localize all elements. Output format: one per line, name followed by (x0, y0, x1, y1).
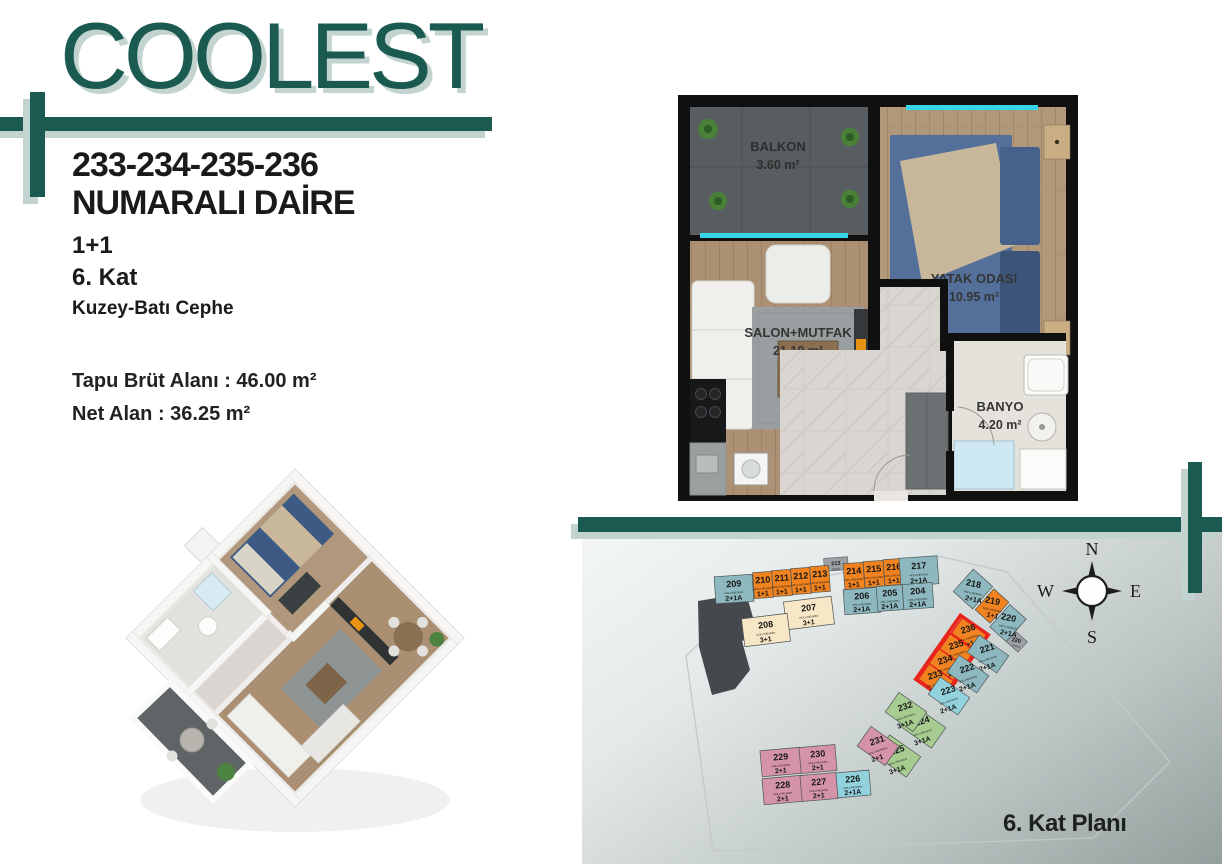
unit-number: 207 (801, 602, 817, 614)
room-label: BALKON (750, 139, 806, 154)
site-unit-229: 229NOLU MESKEN2+1 (760, 747, 802, 776)
unit-type: 2+1A (881, 603, 898, 611)
apartment-facade: Kuzey-Batı Cephe (72, 298, 234, 320)
unit-number: 229 (773, 751, 789, 762)
unit-number: 208 (758, 619, 774, 631)
stub-number: 213 (831, 561, 841, 568)
site-plan-caption: 6. Kat Planı (1003, 810, 1153, 838)
unit-type: 1+1 (888, 578, 900, 586)
apartment-numbers: 233-234-235-236 (72, 146, 318, 185)
apartment-layout: 1+1 (72, 232, 113, 260)
unit-number: 215 (866, 563, 882, 574)
compass-s: S (1087, 627, 1097, 647)
unit-number: 228 (775, 779, 791, 790)
brochure-page: COOLEST 233-234-235-236 NUMARALI DAİRE 1… (0, 0, 1222, 864)
apartment-floor: 6. Kat (72, 264, 137, 292)
window-line (700, 233, 848, 238)
gross-area: Tapu Brüt Alanı : 46.00 m² (72, 370, 316, 393)
unit-type: 2+1A (853, 606, 870, 614)
site-unit-210: 210NOLU MESKEN1+1 (753, 571, 774, 598)
unit-number: 210 (755, 574, 771, 585)
armchair (766, 245, 830, 303)
compass-w: W (1037, 581, 1054, 601)
unit-number: 217 (911, 560, 927, 571)
unit-number: 226 (845, 773, 861, 784)
entry-door (874, 491, 908, 501)
unit-number: 227 (811, 776, 827, 787)
unit-type: 3+1 (802, 619, 815, 627)
unit-type: 2+1 (813, 792, 826, 800)
room-area: 3.60 m² (756, 158, 799, 172)
shower (954, 441, 1014, 489)
unit-type: 1+1 (776, 589, 788, 597)
room-bathroom: BANYO 4.20 m² (952, 335, 1068, 491)
unit-type: 1+1 (795, 587, 807, 595)
unit-type: 3+1 (759, 636, 772, 644)
unit-number: 211 (774, 572, 789, 583)
isometric-render (100, 448, 490, 858)
room-area: 4.20 m² (978, 418, 1021, 432)
site-unit-204: 204NOLU MESKEN2+1A (902, 582, 934, 609)
site-unit-207: 207NOLU MESKEN3+1 (783, 596, 834, 630)
site-unit-230: 230NOLU MESKEN2+1 (799, 744, 837, 773)
stub-sublabel: TERAS (832, 568, 841, 572)
site-unit-215: 215NOLU MESKEN1+1 (863, 560, 885, 587)
room-balcony: BALKON 3.60 m² (690, 107, 868, 238)
site-unit-208: 208NOLU MESKEN3+1 (741, 613, 790, 646)
unit-number: 205 (882, 587, 898, 598)
unit-type: 2+1 (812, 764, 825, 772)
unit-number: 230 (810, 748, 826, 759)
site-plan-units: 213TERAS220TERAS209NOLU MESKEN2+1A210NOL… (714, 556, 1027, 805)
site-unit-226: 226NOLU MESKEN2+1A (835, 770, 871, 798)
site-unit-217: 217NOLU MESKEN2+1A (899, 556, 939, 587)
unit-number: 214 (846, 565, 862, 576)
unit-type: 2+1 (777, 795, 790, 803)
site-unit-211: 211NOLU MESKEN1+1 (772, 569, 793, 596)
compass-e: E (1130, 581, 1141, 601)
bathtub (1024, 355, 1068, 395)
divider-mid-cross (1188, 462, 1202, 593)
room-label: BANYO (977, 399, 1024, 414)
unit-type: 2+1A (939, 704, 957, 716)
unit-type: 1+1 (848, 582, 860, 590)
net-area: Net Alan : 36.25 m² (72, 403, 250, 426)
unit-number: 204 (910, 585, 926, 596)
apartment-title: NUMARALI DAİRE (72, 184, 355, 223)
divider-mid (578, 517, 1222, 532)
site-unit-213: 213NOLU MESKEN1+1 (810, 565, 831, 592)
unit-number: 206 (854, 590, 870, 601)
unit-type: 1+1 (814, 585, 826, 593)
site-unit-205: 205NOLU MESKEN2+1A (876, 585, 904, 612)
plant-icon (217, 763, 235, 781)
site-unit-214: 214NOLU MESKEN1+1 (843, 562, 865, 589)
site-unit-206: 206NOLU MESKEN2+1A (843, 587, 881, 614)
unit-type: 1+1 (757, 591, 769, 599)
room-area: 10.95 m² (949, 290, 999, 304)
unit-type: 2+1A (909, 601, 926, 609)
site-unit-212: 212NOLU MESKEN1+1 (791, 567, 812, 594)
unit-type: 2+1A (725, 595, 742, 603)
site-unit-227: 227NOLU MESKEN2+1 (800, 772, 838, 801)
unit-type: 2+1A (844, 789, 861, 797)
unit-number: 209 (726, 578, 742, 589)
divider-top-cross (30, 92, 45, 197)
compass: N S W E (1037, 539, 1141, 647)
site-unit-209: 209NOLU MESKEN2+1A (714, 574, 754, 604)
window-line (906, 105, 1038, 110)
brand-logo: COOLEST (60, 2, 481, 110)
unit-number: 212 (793, 570, 809, 581)
divider-top (0, 117, 492, 131)
site-unit-228: 228NOLU MESKEN2+1 (762, 775, 804, 804)
unit-number: 213 (812, 568, 828, 579)
room-label: SALON+MUTFAK (744, 325, 852, 340)
unit-type: 2+1 (775, 767, 788, 775)
floor-plan: BALKON 3.60 m² YATAK ODASI 10.95 m² (678, 95, 1078, 501)
compass-n: N (1086, 539, 1099, 559)
